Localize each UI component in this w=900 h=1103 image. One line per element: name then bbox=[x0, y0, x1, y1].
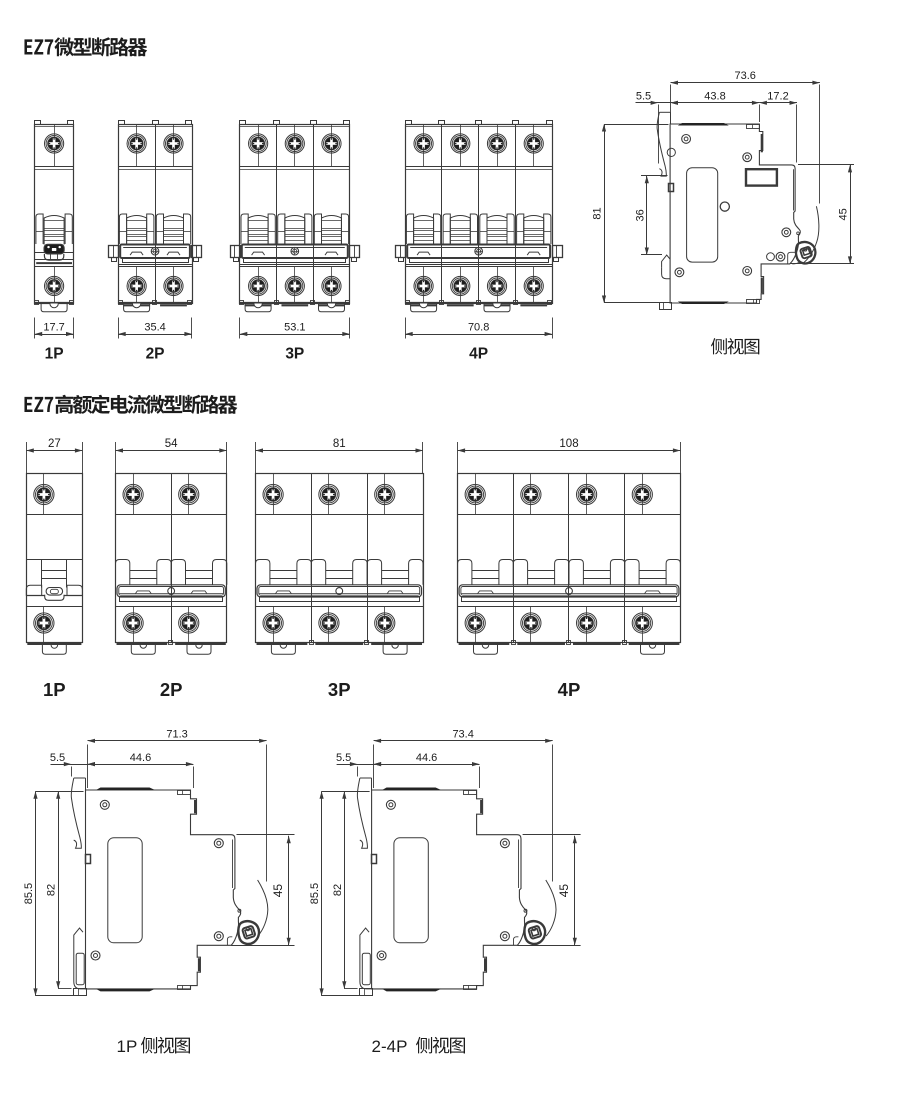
svg-text:36: 36 bbox=[634, 209, 646, 221]
svg-text:45: 45 bbox=[838, 208, 850, 220]
svg-text:82: 82 bbox=[46, 884, 58, 896]
svg-text:1P: 1P bbox=[43, 679, 66, 700]
svg-text:5.5: 5.5 bbox=[50, 752, 65, 764]
svg-text:2P: 2P bbox=[160, 679, 183, 700]
svg-text:70.8: 70.8 bbox=[468, 322, 489, 334]
svg-text:54: 54 bbox=[165, 438, 178, 450]
svg-text:4P: 4P bbox=[469, 346, 488, 363]
svg-text:108: 108 bbox=[559, 438, 578, 450]
svg-text:85.5: 85.5 bbox=[309, 883, 321, 904]
svg-text:81: 81 bbox=[333, 438, 346, 450]
svg-text:3P: 3P bbox=[285, 346, 304, 363]
svg-text:1P: 1P bbox=[117, 1037, 138, 1056]
svg-text:4P: 4P bbox=[558, 679, 581, 700]
svg-text:71.3: 71.3 bbox=[166, 728, 187, 740]
svg-text:85.5: 85.5 bbox=[23, 883, 35, 904]
svg-text:2P: 2P bbox=[146, 346, 165, 363]
svg-text:43.8: 43.8 bbox=[704, 91, 725, 103]
svg-text:1P: 1P bbox=[45, 346, 64, 363]
svg-text:73.4: 73.4 bbox=[452, 728, 473, 740]
svg-text:44.6: 44.6 bbox=[130, 752, 151, 764]
svg-text:3P: 3P bbox=[328, 679, 351, 700]
svg-text:27: 27 bbox=[48, 438, 61, 450]
svg-text:45: 45 bbox=[271, 884, 285, 898]
svg-text:44.6: 44.6 bbox=[416, 752, 437, 764]
svg-text:5.5: 5.5 bbox=[336, 752, 351, 764]
svg-text:45: 45 bbox=[557, 884, 571, 898]
svg-text:81: 81 bbox=[592, 207, 604, 219]
svg-text:35.4: 35.4 bbox=[144, 322, 165, 334]
svg-text:17.2: 17.2 bbox=[767, 91, 788, 103]
svg-text:17.7: 17.7 bbox=[43, 322, 64, 334]
svg-text:2-4P: 2-4P bbox=[372, 1037, 408, 1056]
svg-text:5.5: 5.5 bbox=[636, 91, 651, 103]
svg-text:53.1: 53.1 bbox=[284, 322, 305, 334]
svg-text:82: 82 bbox=[332, 884, 344, 896]
svg-text:73.6: 73.6 bbox=[734, 70, 755, 82]
